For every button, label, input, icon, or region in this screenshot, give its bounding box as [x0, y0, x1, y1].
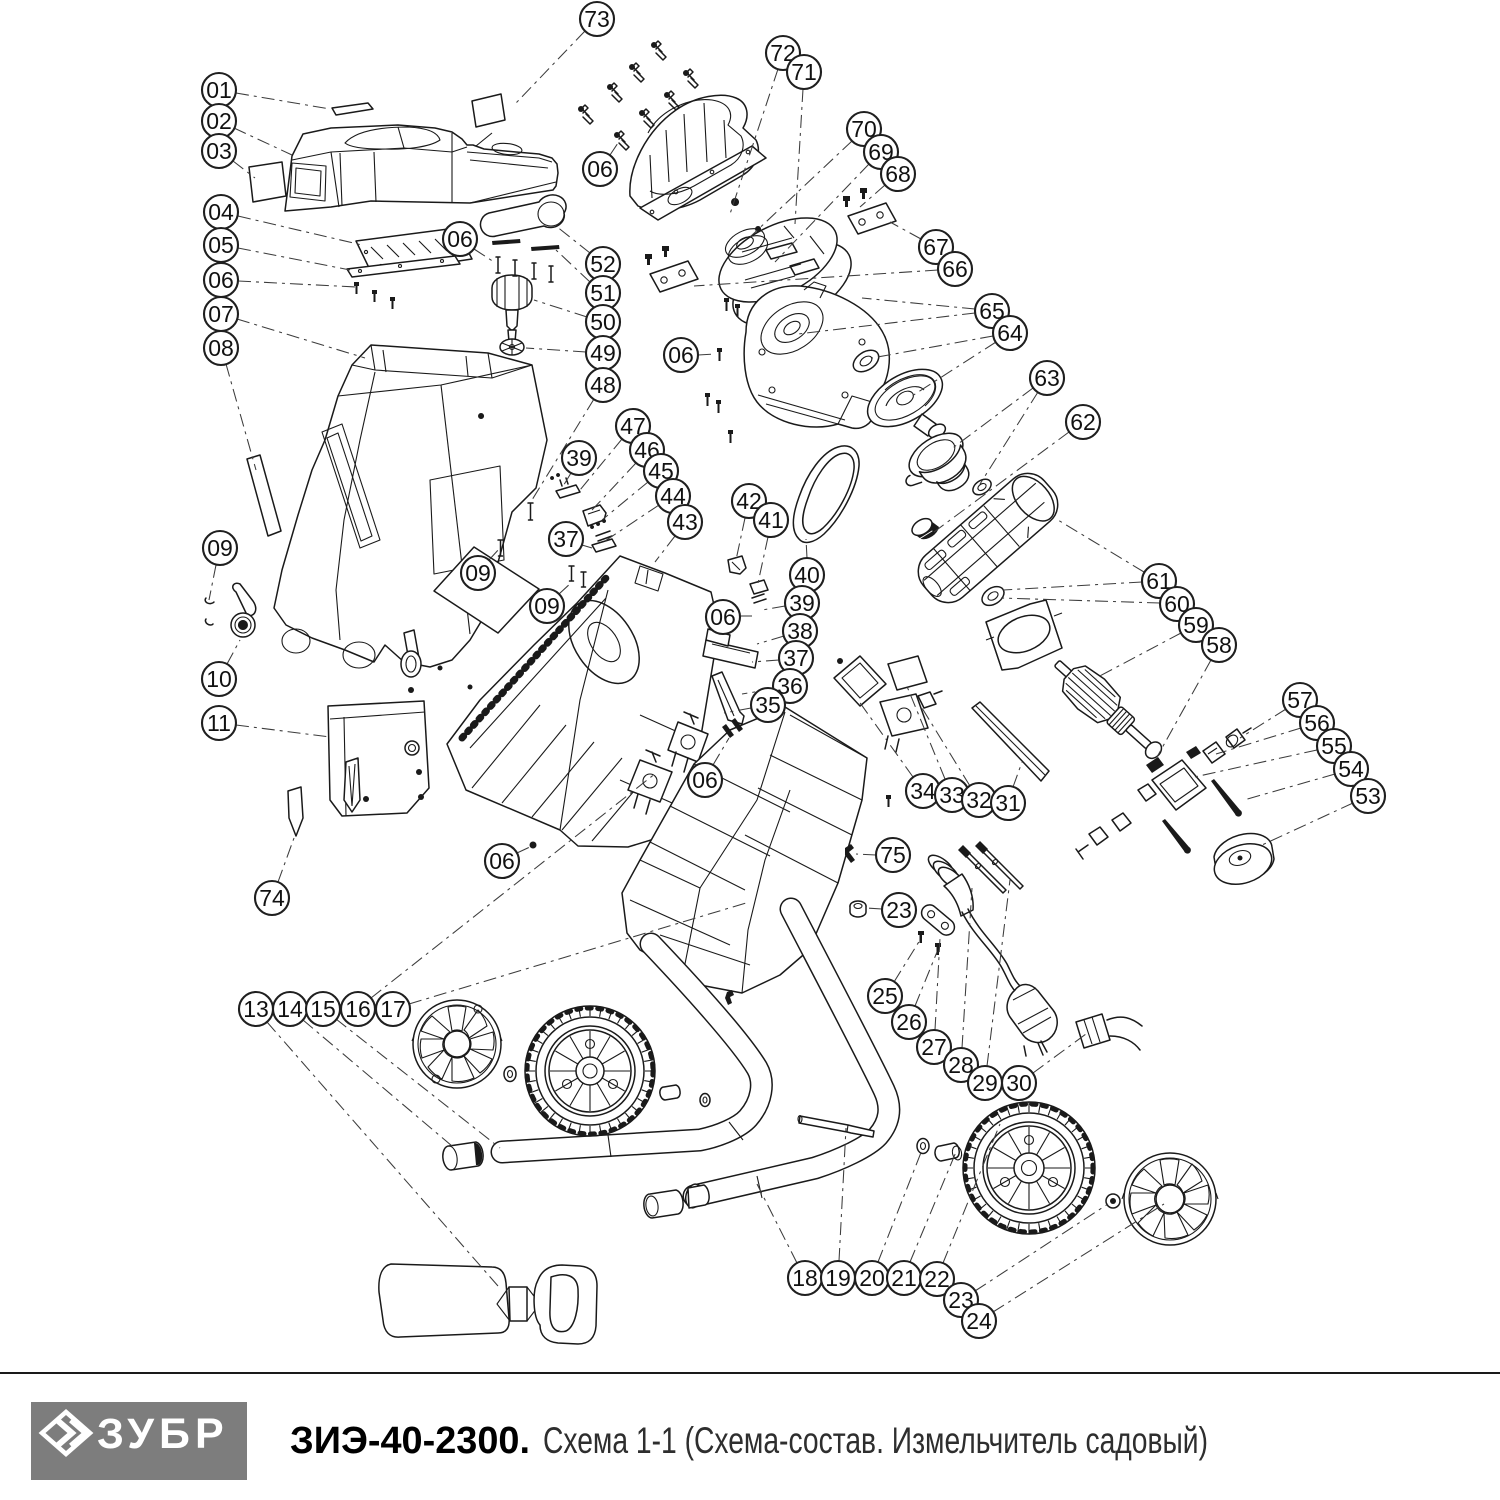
svg-text:62: 62 [1070, 409, 1096, 435]
svg-text:09: 09 [534, 593, 560, 619]
svg-text:17: 17 [380, 996, 406, 1022]
svg-text:37: 37 [783, 645, 809, 671]
svg-text:24: 24 [966, 1308, 992, 1334]
svg-text:33: 33 [939, 782, 965, 808]
svg-text:23: 23 [886, 897, 912, 923]
svg-text:05: 05 [208, 232, 234, 258]
svg-text:30: 30 [1006, 1070, 1032, 1096]
svg-text:03: 03 [206, 138, 232, 164]
svg-text:35: 35 [755, 692, 781, 718]
svg-text:ЗУБР: ЗУБР [97, 1410, 229, 1458]
svg-text:41: 41 [758, 507, 784, 533]
svg-text:13: 13 [243, 996, 269, 1022]
svg-text:68: 68 [885, 161, 911, 187]
svg-text:38: 38 [787, 618, 813, 644]
svg-text:06: 06 [668, 342, 694, 368]
svg-text:26: 26 [896, 1009, 922, 1035]
svg-text:16: 16 [345, 996, 371, 1022]
svg-text:37: 37 [553, 526, 579, 552]
svg-text:18: 18 [792, 1265, 818, 1291]
svg-text:75: 75 [880, 842, 906, 868]
svg-text:22: 22 [924, 1266, 950, 1292]
svg-text:14: 14 [277, 996, 303, 1022]
svg-text:51: 51 [590, 280, 616, 306]
svg-text:20: 20 [859, 1265, 885, 1291]
svg-text:27: 27 [921, 1034, 947, 1060]
svg-text:15: 15 [310, 996, 336, 1022]
svg-text:31: 31 [995, 790, 1021, 816]
svg-text:39: 39 [566, 445, 592, 471]
svg-text:21: 21 [891, 1265, 917, 1291]
svg-text:49: 49 [590, 340, 616, 366]
svg-text:64: 64 [997, 320, 1023, 346]
svg-text:08: 08 [208, 335, 234, 361]
svg-text:06: 06 [587, 156, 613, 182]
svg-text:74: 74 [259, 885, 285, 911]
svg-text:71: 71 [791, 59, 817, 85]
svg-text:01: 01 [206, 77, 232, 103]
svg-text:58: 58 [1206, 632, 1232, 658]
svg-text:39: 39 [789, 590, 815, 616]
svg-text:06: 06 [489, 848, 515, 874]
svg-text:09: 09 [207, 535, 233, 561]
svg-text:48: 48 [590, 372, 616, 398]
svg-text:10: 10 [206, 666, 232, 692]
svg-text:63: 63 [1034, 365, 1060, 391]
svg-text:66: 66 [942, 256, 968, 282]
svg-text:29: 29 [972, 1070, 998, 1096]
svg-text:ЗИЭ-40-2300.: ЗИЭ-40-2300. [290, 1420, 530, 1462]
svg-text:19: 19 [825, 1265, 851, 1291]
svg-text:06: 06 [710, 604, 736, 630]
svg-text:54: 54 [1338, 756, 1364, 782]
svg-text:52: 52 [590, 251, 616, 277]
svg-text:06: 06 [208, 267, 234, 293]
svg-text:53: 53 [1355, 783, 1381, 809]
svg-text:40: 40 [794, 562, 820, 588]
svg-text:43: 43 [672, 509, 698, 535]
svg-text:02: 02 [206, 108, 232, 134]
svg-text:11: 11 [207, 710, 231, 736]
svg-text:06: 06 [447, 226, 473, 252]
svg-text:07: 07 [208, 301, 234, 327]
svg-text:32: 32 [966, 787, 992, 813]
svg-text:34: 34 [910, 778, 936, 804]
svg-text:73: 73 [584, 6, 610, 32]
svg-text:25: 25 [872, 983, 898, 1009]
svg-text:06: 06 [692, 767, 718, 793]
svg-text:04: 04 [208, 199, 234, 225]
svg-text:Схема 1-1 (Схема-состав. Измел: Схема 1-1 (Схема-состав. Измельчитель са… [543, 1420, 1208, 1461]
svg-text:09: 09 [465, 560, 491, 586]
svg-text:50: 50 [590, 309, 616, 335]
